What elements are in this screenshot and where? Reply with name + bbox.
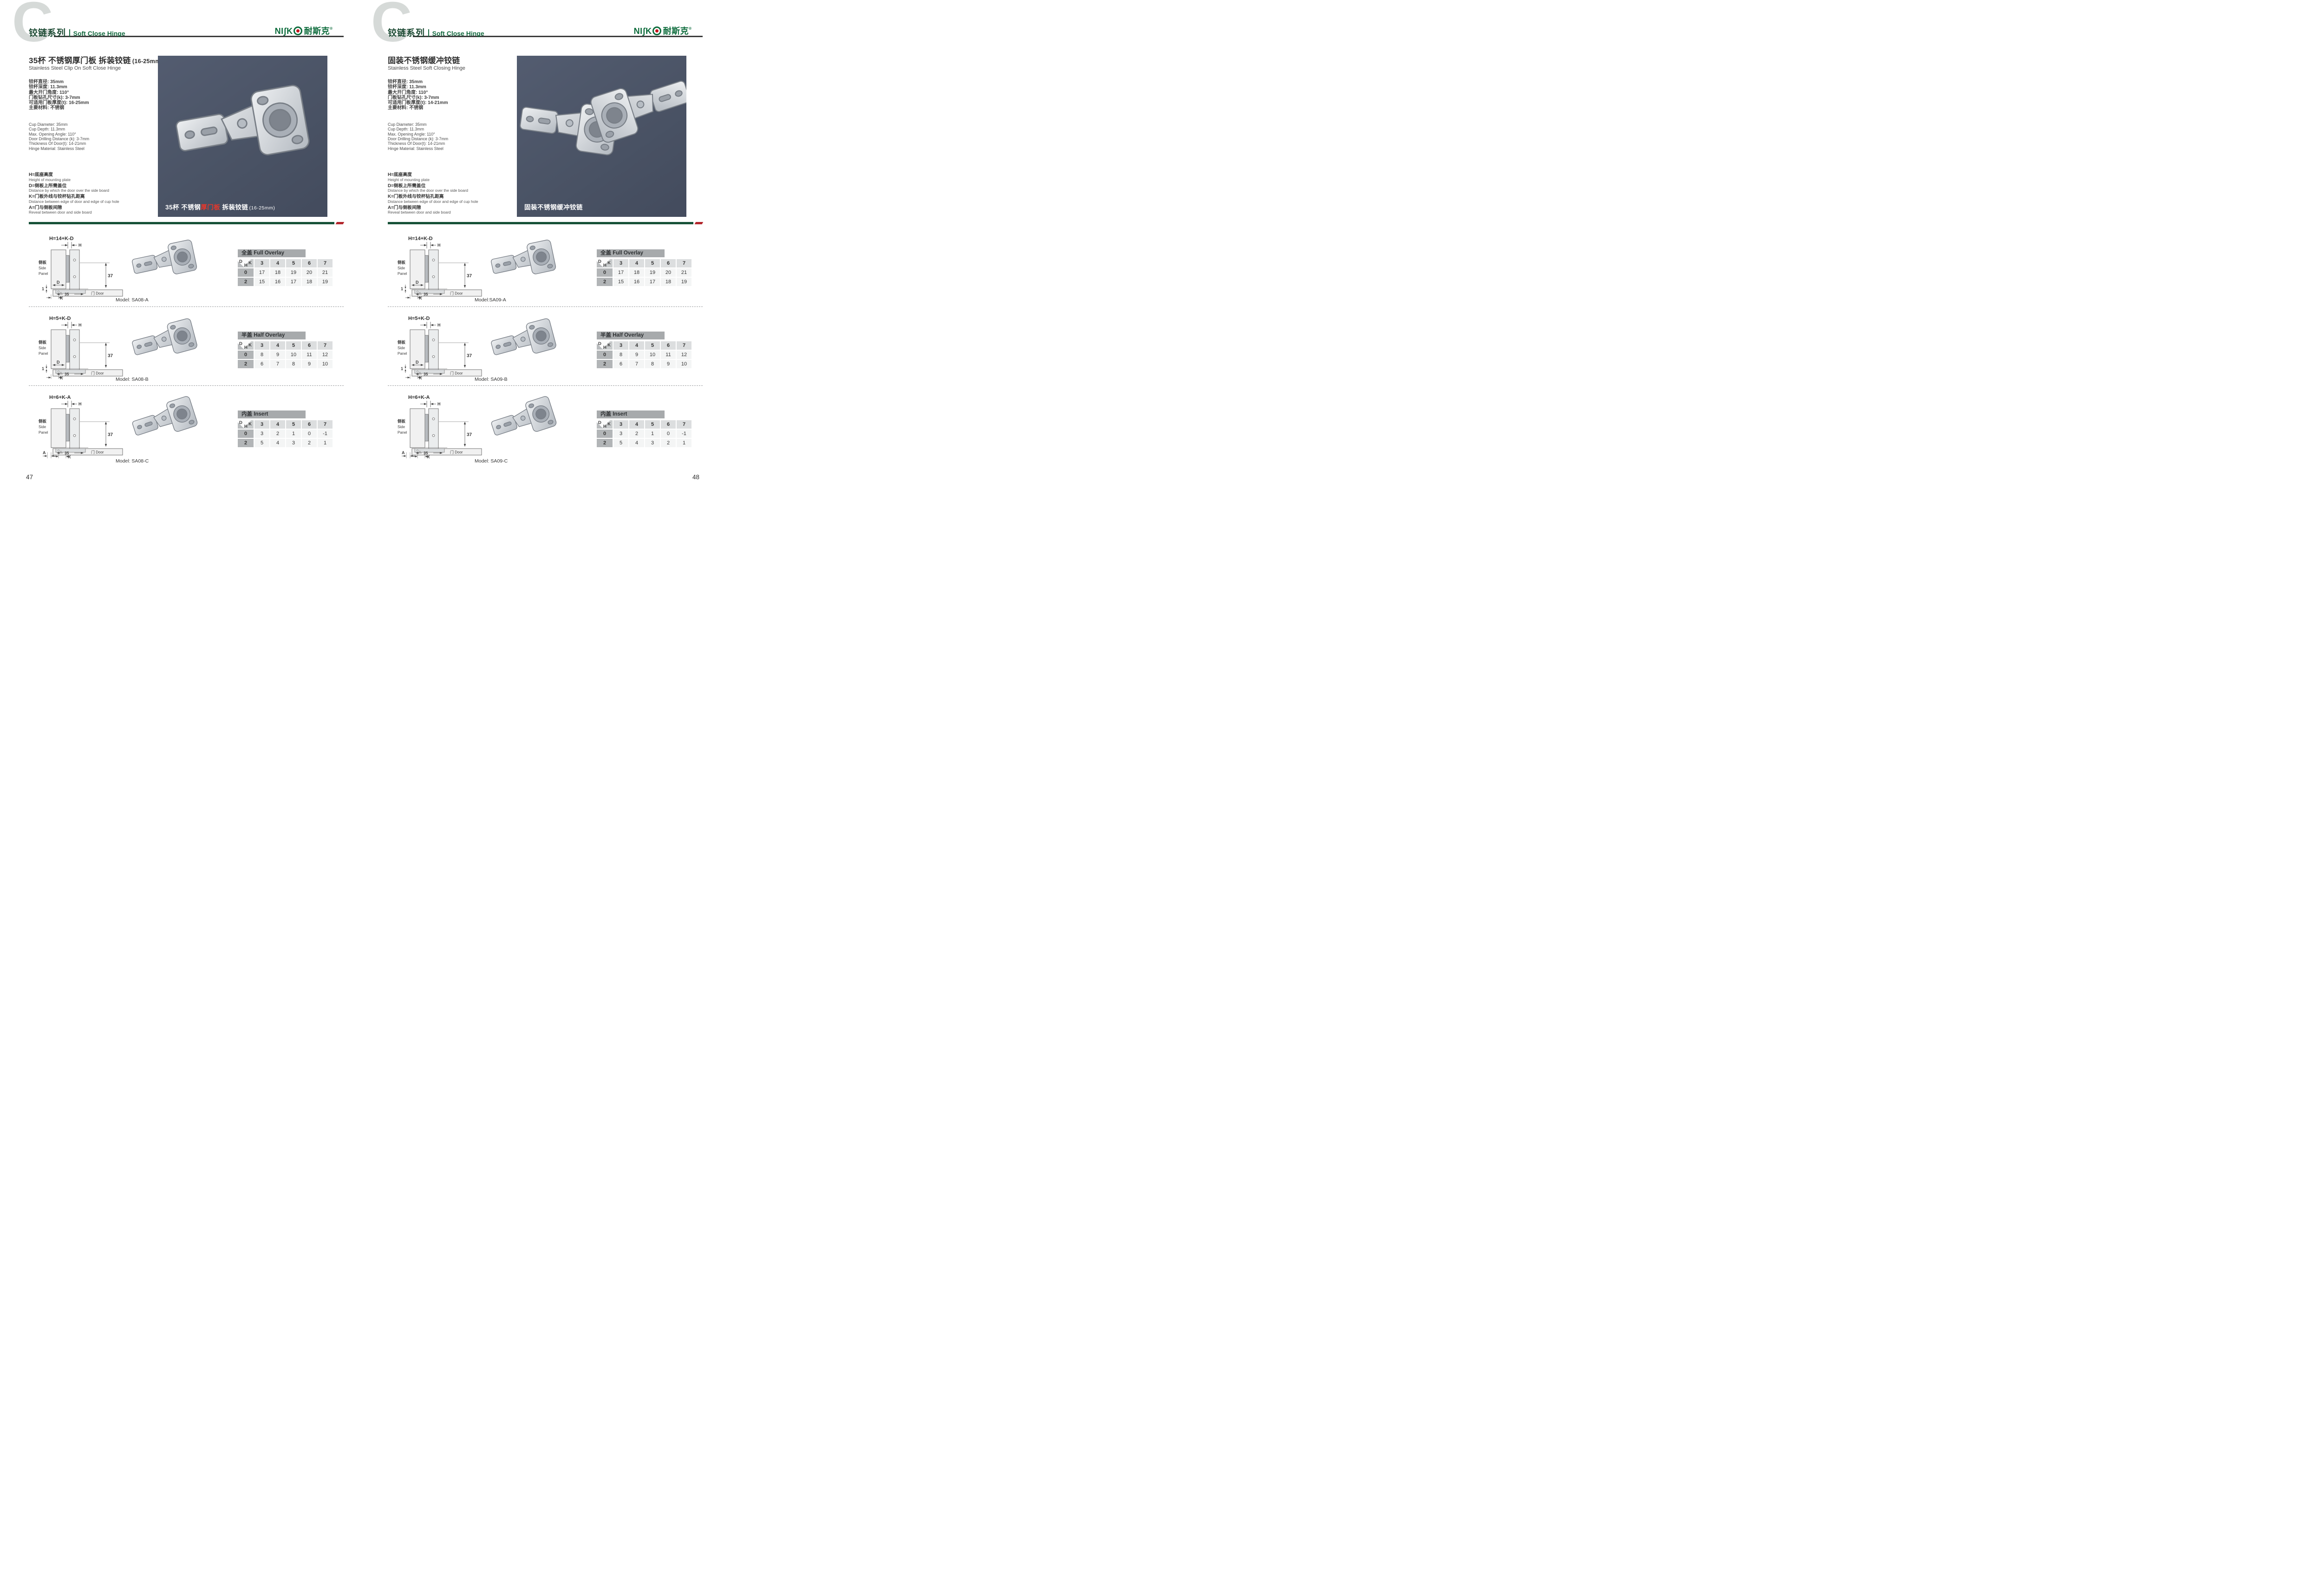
k-header-cell: 7	[677, 420, 691, 429]
table-value-cell: 10	[318, 360, 333, 368]
k-header-cell: 4	[629, 420, 644, 429]
k-header-cell: 7	[677, 259, 691, 267]
svg-text:37: 37	[108, 274, 113, 279]
hinge-photo-small	[483, 385, 565, 452]
catalog-spread: C 铰链系列Soft Close Hinge NIʃK耐斯克® 35杯 不锈钢厚…	[0, 0, 718, 490]
hinge-photo-small	[485, 229, 563, 291]
spec-line-en: Cup Diameter: 35mm	[388, 122, 448, 127]
table-value-cell: 6	[613, 360, 628, 368]
table-value-cell: 1	[645, 430, 660, 438]
caption-red-text: 厚门板	[201, 204, 220, 211]
legend-item: A=门与侧板间隙Reveal between door and side boa…	[388, 205, 478, 215]
product-title: 35杯 不锈钢厚门板 拆装铰链(16-25mm)	[29, 54, 163, 65]
table-value-cell: 18	[302, 278, 317, 286]
table-value-cell: 8	[286, 360, 301, 368]
logo-dot-icon	[296, 29, 300, 33]
k-header-cell: 5	[286, 420, 301, 429]
table-corner-cell: DKH	[597, 259, 613, 267]
table-title: 半盖 Half Overlay	[597, 332, 665, 339]
logo-cn-text: 耐斯克	[663, 26, 689, 36]
svg-text:1: 1	[42, 366, 44, 371]
hinge-photo-small	[124, 385, 206, 452]
page-number: 47	[26, 474, 33, 481]
svg-text:Side: Side	[39, 425, 46, 429]
spec-line-cn: 门板钻孔尺寸(k): 3-7mm	[388, 95, 448, 100]
table-full-overlay: 全盖 Full Overlay DKH 34567 0 1718192021 2…	[597, 249, 692, 286]
model-label: Model: SA08-B	[116, 377, 149, 382]
model-label: Model: SA09-B	[475, 377, 508, 382]
specs-en-list: Cup Diameter: 35mmCup Depth: 11.3mmMax. …	[29, 122, 89, 151]
svg-text:35: 35	[65, 372, 69, 377]
spec-line-en: Max. Opening Angle: 110°	[29, 132, 89, 137]
svg-text:H=14+K-D: H=14+K-D	[408, 236, 433, 241]
table-value-cell: 15	[613, 278, 628, 286]
model-label: Model: SA09-C	[475, 458, 508, 464]
row-header: 2	[597, 439, 613, 447]
specs-en-list: Cup Diameter: 35mmCup Depth: 11.3mmMax. …	[388, 122, 448, 151]
table-value-cell: 19	[677, 278, 691, 286]
svg-text:门 Door: 门 Door	[450, 371, 463, 376]
spec-line-en: Cup Depth: 11.3mm	[29, 127, 89, 131]
table-title: 全盖 Full Overlay	[238, 249, 306, 257]
svg-text:门 Door: 门 Door	[91, 450, 104, 455]
k-header-cell: 5	[645, 341, 660, 350]
k-header-cell: 6	[302, 259, 317, 267]
table-value-cell: -1	[677, 430, 691, 438]
svg-text:门 Door: 门 Door	[91, 291, 104, 296]
table-value-cell: 9	[270, 351, 285, 359]
k-header-cell: 4	[629, 341, 644, 350]
svg-text:Panel: Panel	[39, 430, 48, 435]
svg-text:1: 1	[401, 287, 403, 291]
registered-mark: ®	[330, 26, 333, 31]
table-value-cell: 20	[661, 268, 676, 277]
installation-diagram-full-overlay: H=14+K-D H 侧板 Side Panel 37 35 门 Door D1…	[396, 234, 487, 300]
k-header-cell: 6	[302, 420, 317, 429]
svg-text:Side: Side	[398, 266, 405, 270]
table-value-cell: 16	[270, 278, 285, 286]
svg-text:A: A	[43, 450, 46, 455]
spec-line-cn: 主要材料: 不锈钢	[29, 105, 89, 111]
row-divider	[388, 306, 703, 307]
accent-bar-red	[695, 222, 703, 224]
installation-diagram-half-overlay: H=5+K-D H 侧板 Side Panel 37 35 门 Door D1K…	[396, 314, 487, 380]
svg-text:H: H	[437, 323, 441, 327]
row-header: 0	[238, 351, 254, 359]
model-label: Model: SA08-A	[116, 297, 149, 303]
series-title-en: Soft Close Hinge	[73, 30, 125, 37]
k-header-cell: 3	[254, 259, 269, 267]
table-value-cell: 21	[677, 268, 691, 277]
legend-item: K=门板外线与铰杯钻孔距离Distance between edge of do…	[388, 194, 478, 204]
row-divider	[29, 385, 344, 386]
svg-text:35: 35	[424, 292, 428, 297]
header-divider	[69, 29, 70, 37]
svg-text:H: H	[437, 243, 441, 248]
table-value-cell: 2	[270, 430, 285, 438]
svg-text:1: 1	[42, 287, 44, 291]
k-header-cell: 3	[613, 259, 628, 267]
table-value-cell: 19	[286, 268, 301, 277]
svg-text:Panel: Panel	[398, 352, 407, 356]
svg-text:D: D	[57, 280, 60, 285]
svg-text:1: 1	[401, 366, 403, 371]
svg-text:37: 37	[108, 353, 113, 358]
table-value-cell: 3	[286, 439, 301, 447]
table-value-cell: 19	[645, 268, 660, 277]
table-value-cell: 2	[629, 430, 644, 438]
svg-text:H: H	[78, 323, 82, 327]
product-subtitle: Stainless Steel Soft Closing Hinge	[388, 65, 465, 71]
svg-text:侧板: 侧板	[38, 260, 47, 265]
nisko-logo: NIʃK耐斯克®	[634, 25, 691, 37]
svg-text:Side: Side	[398, 425, 405, 429]
table-value-cell: 3	[254, 430, 269, 438]
k-header-cell: 5	[286, 341, 301, 350]
series-title-cn: 铰链系列	[388, 28, 425, 38]
svg-text:D: D	[416, 360, 419, 365]
accent-bar-green	[29, 222, 334, 224]
row-header: 2	[238, 360, 254, 368]
svg-text:A: A	[402, 450, 405, 455]
table-value-cell: 12	[677, 351, 691, 359]
k-header-cell: 4	[270, 341, 285, 350]
table-value-cell: 8	[613, 351, 628, 359]
k-header-cell: 6	[661, 341, 676, 350]
installation-diagram-half-overlay: H=5+K-D H 侧板 Side Panel 37 35 门 Door D1K…	[37, 314, 128, 380]
table-half-overlay: 半盖 Half Overlay DKH 34567 0 89101112 2 6…	[238, 332, 333, 368]
accent-bar-green	[388, 222, 693, 224]
svg-text:侧板: 侧板	[38, 419, 47, 423]
spec-line-en: Cup Diameter: 35mm	[29, 122, 89, 127]
svg-text:K: K	[60, 296, 63, 300]
spec-line-en: Max. Opening Angle: 110°	[388, 132, 448, 137]
table-value-cell: 0	[661, 430, 676, 438]
series-c-watermark: C	[371, 0, 412, 50]
hinge-photo-small	[125, 307, 205, 372]
row-header: 2	[238, 278, 254, 286]
svg-text:Side: Side	[39, 266, 46, 270]
svg-text:门 Door: 门 Door	[91, 371, 104, 376]
spec-line-cn: 可适用门板厚度(t): 14-21mm	[388, 100, 448, 105]
table-title: 半盖 Half Overlay	[238, 332, 306, 339]
table-value-cell: 9	[661, 360, 676, 368]
nisko-logo: NIʃK耐斯克®	[275, 25, 333, 37]
table-corner-cell: DKH	[238, 341, 254, 350]
table-half-overlay: 半盖 Half Overlay DKH 34567 0 89101112 2 6…	[597, 332, 692, 368]
svg-text:K: K	[419, 376, 422, 380]
svg-text:Side: Side	[39, 346, 46, 350]
svg-text:H=6+K-A: H=6+K-A	[49, 395, 71, 400]
svg-text:H=5+K-D: H=5+K-D	[408, 316, 430, 321]
k-header-cell: 6	[661, 259, 676, 267]
svg-text:H=5+K-D: H=5+K-D	[49, 316, 71, 321]
logo-latin-text: NIʃK	[275, 26, 293, 36]
k-header-cell: 3	[613, 420, 628, 429]
table-value-cell: 10	[645, 351, 660, 359]
k-header-cell: 5	[645, 420, 660, 429]
svg-text:Panel: Panel	[39, 352, 48, 356]
table-value-cell: 7	[629, 360, 644, 368]
specs-cn-list: 铰杯直径: 35mm铰杯深度: 11.3mm最大开门角度: 110°门板钻孔尺寸…	[388, 79, 448, 111]
table-insert: 内盖 Insert DKH 34567 0 3210-1 2 54321	[238, 410, 333, 447]
svg-text:H: H	[437, 402, 441, 406]
row-divider	[388, 385, 703, 386]
table-title: 内盖 Insert	[597, 410, 665, 418]
product-photo: 固装不锈钢缓冲铰链	[517, 56, 686, 217]
table-value-cell: 3	[613, 430, 628, 438]
svg-text:侧板: 侧板	[397, 419, 406, 423]
table-value-cell: 1	[286, 430, 301, 438]
k-header-cell: 7	[318, 259, 333, 267]
table-value-cell: 1	[318, 439, 333, 447]
series-c-watermark: C	[12, 0, 53, 50]
product-title: 固装不锈钢缓冲铰链	[388, 54, 462, 65]
logo-target-icon	[294, 26, 302, 35]
page-right: C 铰链系列Soft Close Hinge NIʃK耐斯克® 固装不锈钢缓冲铰…	[359, 0, 718, 490]
k-header-cell: 5	[645, 259, 660, 267]
table-value-cell: 20	[302, 268, 317, 277]
row-header: 0	[597, 430, 613, 438]
logo-latin-text: NIʃK	[634, 26, 652, 36]
accent-bar-red	[336, 222, 344, 224]
table-value-cell: 2	[302, 439, 317, 447]
svg-text:Panel: Panel	[398, 430, 407, 435]
table-corner-cell: DKH	[597, 420, 613, 429]
installation-diagram-insert: H=6+K-A H 侧板 Side Panel 37 35 门 Door D1K…	[396, 393, 487, 459]
svg-text:Panel: Panel	[39, 272, 48, 276]
spec-line-cn: 最大开门角度: 110°	[29, 90, 89, 95]
table-value-cell: 12	[318, 351, 333, 359]
spec-line-en: Hinge Material: Stainless Steel	[29, 146, 89, 151]
svg-text:侧板: 侧板	[38, 340, 47, 345]
svg-text:37: 37	[467, 353, 472, 358]
k-header-cell: 7	[318, 341, 333, 350]
dimension-legend: H=底座高度Height of mounting plate D=侧板上所需盖位…	[388, 172, 478, 216]
table-value-cell: 17	[613, 268, 628, 277]
accent-bar	[388, 222, 703, 224]
product-photo: 35杯 不锈钢厚门板 拆装铰链(16-25mm)	[158, 56, 327, 217]
svg-text:K: K	[68, 455, 71, 459]
spec-line-en: Door Drilling Distance (k): 3-7mm	[29, 137, 89, 141]
svg-text:门 Door: 门 Door	[450, 450, 463, 455]
table-insert: 内盖 Insert DKH 34567 0 3210-1 2 54321	[597, 410, 692, 447]
table-value-cell: 5	[613, 439, 628, 447]
table-value-cell: 11	[302, 351, 317, 359]
table-corner-cell: DKH	[597, 341, 613, 350]
table-value-cell: 6	[254, 360, 269, 368]
model-label: Model:SA09-A	[475, 297, 506, 303]
svg-text:35: 35	[65, 292, 69, 297]
hinge-photo-small	[484, 307, 564, 372]
row-header: 2	[238, 439, 254, 447]
row-header: 0	[597, 351, 613, 359]
svg-text:侧板: 侧板	[397, 340, 406, 345]
k-header-cell: 4	[629, 259, 644, 267]
photo-caption: 35杯 不锈钢厚门板 拆装铰链(16-25mm)	[165, 202, 275, 211]
table-value-cell: 9	[629, 351, 644, 359]
table-value-cell: 3	[645, 439, 660, 447]
installation-diagram-full-overlay: H=14+K-D H 侧板 Side Panel 37 35 门 Door D1…	[37, 234, 128, 300]
row-header: 0	[238, 430, 254, 438]
row-divider	[29, 306, 344, 307]
k-header-cell: 7	[318, 420, 333, 429]
page-number: 48	[692, 474, 699, 481]
svg-text:H=6+K-A: H=6+K-A	[408, 395, 430, 400]
table-value-cell: 17	[286, 278, 301, 286]
table-value-cell: 11	[661, 351, 676, 359]
k-header-cell: 5	[286, 259, 301, 267]
row-header: 2	[597, 278, 613, 286]
svg-text:37: 37	[467, 432, 472, 437]
row-header: 2	[597, 360, 613, 368]
table-title: 内盖 Insert	[238, 410, 306, 418]
table-value-cell: 17	[254, 268, 269, 277]
photo-caption: 固装不锈钢缓冲铰链	[524, 202, 584, 211]
spec-line-cn: 可适用门板厚度(t): 16-25mm	[29, 100, 89, 105]
table-value-cell: 1	[677, 439, 691, 447]
table-value-cell: 16	[629, 278, 644, 286]
spec-line-cn: 铰杯深度: 11.3mm	[388, 85, 448, 90]
k-header-cell: 6	[302, 341, 317, 350]
k-header-cell: 4	[270, 420, 285, 429]
svg-text:Panel: Panel	[398, 272, 407, 276]
table-value-cell: 18	[270, 268, 285, 277]
dimension-legend: H=底座高度Height of mounting plate D=侧板上所需盖位…	[29, 172, 119, 216]
svg-text:37: 37	[108, 432, 113, 437]
legend-item: A=门与侧板间隙Reveal between door and side boa…	[29, 205, 119, 215]
svg-text:K: K	[419, 296, 422, 300]
header-divider	[428, 29, 429, 37]
spec-line-en: Thickness Of Door(t): 14-21mm	[388, 141, 448, 146]
spec-line-en: Door Drilling Distance (k): 3-7mm	[388, 137, 448, 141]
legend-item: K=门板外线与铰杯钻孔距离Distance between edge of do…	[29, 194, 119, 204]
spec-line-cn: 铰杯直径: 35mm	[29, 79, 89, 85]
series-header: 铰链系列Soft Close Hinge	[388, 26, 484, 39]
k-header-cell: 3	[254, 341, 269, 350]
registered-mark: ®	[689, 26, 691, 31]
table-value-cell: 9	[302, 360, 317, 368]
table-value-cell: -1	[318, 430, 333, 438]
spec-line-en: Thickness Of Door(t): 14-21mm	[29, 141, 89, 146]
table-value-cell: 8	[645, 360, 660, 368]
table-value-cell: 0	[302, 430, 317, 438]
table-value-cell: 2	[661, 439, 676, 447]
svg-text:门 Door: 门 Door	[450, 291, 463, 296]
table-value-cell: 4	[629, 439, 644, 447]
row-header: 0	[597, 268, 613, 277]
table-value-cell: 15	[254, 278, 269, 286]
table-corner-cell: DKH	[238, 259, 254, 267]
table-value-cell: 10	[286, 351, 301, 359]
svg-text:D: D	[416, 280, 419, 285]
hinge-photo-small	[126, 229, 204, 291]
table-value-cell: 8	[254, 351, 269, 359]
table-value-cell: 4	[270, 439, 285, 447]
spec-line-cn: 最大开门角度: 110°	[388, 90, 448, 95]
spec-line-en: Hinge Material: Stainless Steel	[388, 146, 448, 151]
spec-line-cn: 铰杯直径: 35mm	[388, 79, 448, 85]
legend-item: H=底座高度Height of mounting plate	[29, 172, 119, 182]
k-header-cell: 7	[677, 341, 691, 350]
table-title: 全盖 Full Overlay	[597, 249, 665, 257]
table-value-cell: 18	[629, 268, 644, 277]
svg-text:H=14+K-D: H=14+K-D	[49, 236, 74, 241]
legend-item: D=侧板上所需盖位Distance by which the door over…	[29, 183, 119, 193]
spec-line-en: Cup Depth: 11.3mm	[388, 127, 448, 131]
series-header: 铰链系列Soft Close Hinge	[29, 26, 125, 39]
table-value-cell: 5	[254, 439, 269, 447]
product-subtitle: Stainless Steel Clip On Soft Close Hinge	[29, 65, 121, 71]
svg-text:H: H	[78, 402, 82, 406]
installation-diagram-insert: H=6+K-A H 侧板 Side Panel 37 35 门 Door D1K…	[37, 393, 128, 459]
logo-target-icon	[652, 26, 661, 35]
spec-line-cn: 铰杯深度: 11.3mm	[29, 85, 89, 90]
spec-line-cn: 门板钻孔尺寸(k): 3-7mm	[29, 95, 89, 100]
legend-item: D=侧板上所需盖位Distance by which the door over…	[388, 183, 478, 193]
svg-text:H: H	[78, 243, 82, 248]
logo-dot-icon	[655, 29, 659, 33]
specs-cn-list: 铰杯直径: 35mm铰杯深度: 11.3mm最大开门角度: 110°门板钻孔尺寸…	[29, 79, 89, 111]
logo-cn-text: 耐斯克	[304, 26, 330, 36]
accent-bar	[29, 222, 344, 224]
model-label: Model: SA08-C	[116, 458, 149, 464]
table-value-cell: 10	[677, 360, 691, 368]
k-header-cell: 3	[613, 341, 628, 350]
series-title-en: Soft Close Hinge	[432, 30, 484, 37]
svg-text:35: 35	[424, 372, 428, 377]
row-header: 0	[238, 268, 254, 277]
svg-text:侧板: 侧板	[397, 260, 406, 265]
svg-text:K: K	[60, 376, 63, 380]
table-value-cell: 7	[270, 360, 285, 368]
svg-text:D: D	[57, 360, 60, 365]
table-corner-cell: DKH	[238, 420, 254, 429]
table-value-cell: 17	[645, 278, 660, 286]
hinge-photo-large	[164, 65, 323, 186]
svg-text:Side: Side	[398, 346, 405, 350]
table-value-cell: 18	[661, 278, 676, 286]
k-header-cell: 4	[270, 259, 285, 267]
table-full-overlay: 全盖 Full Overlay DKH 34567 0 1718192021 2…	[238, 249, 333, 286]
svg-text:K: K	[427, 455, 430, 459]
spec-line-cn: 主要材料: 不锈钢	[388, 105, 448, 111]
k-header-cell: 6	[661, 420, 676, 429]
k-header-cell: 3	[254, 420, 269, 429]
table-value-cell: 21	[318, 268, 333, 277]
page-left: C 铰链系列Soft Close Hinge NIʃK耐斯克® 35杯 不锈钢厚…	[0, 0, 359, 490]
caption-size-text: (16-25mm)	[249, 205, 275, 211]
table-value-cell: 19	[318, 278, 333, 286]
series-title-cn: 铰链系列	[29, 28, 66, 38]
svg-text:37: 37	[467, 274, 472, 279]
legend-item: H=底座高度Height of mounting plate	[388, 172, 478, 182]
